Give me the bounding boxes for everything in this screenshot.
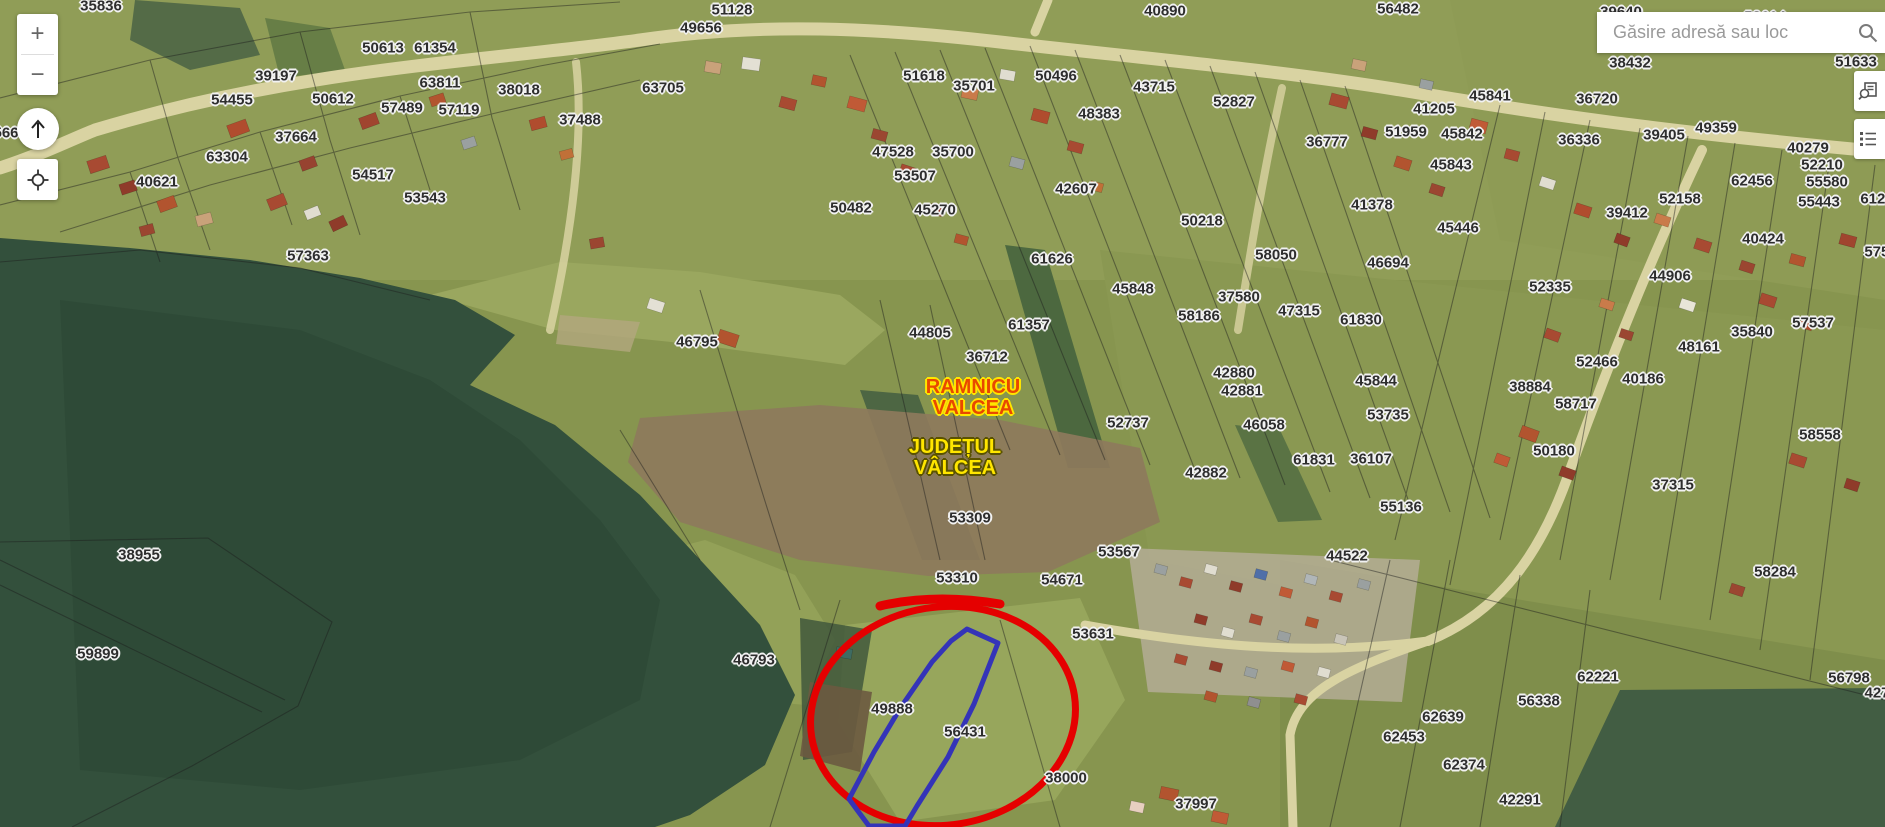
parcel-label: 50612 [312, 91, 354, 108]
parcel-label: 45844 [1355, 373, 1397, 390]
search-bar [1597, 12, 1885, 53]
parcel-label: 58284 [1754, 564, 1796, 581]
parcel-label: 45842 [1441, 126, 1483, 143]
parcel-label: 52737 [1107, 415, 1149, 432]
parcel-label: 49359 [1695, 120, 1737, 137]
parcel-label: 61830 [1340, 312, 1382, 329]
parcel-label: 63811 [420, 75, 461, 92]
parcel-label: 57363 [287, 248, 329, 265]
locate-button[interactable] [17, 159, 58, 200]
parcel-label: 54671 [1041, 572, 1083, 589]
parcel-label: 52210 [1801, 157, 1843, 174]
parcel-label: 49888 [871, 701, 913, 718]
parcel-label: 38884 [1509, 379, 1551, 396]
north-arrow-button[interactable] [17, 108, 59, 150]
parcel-label: 427 [1864, 685, 1885, 702]
parcel-label: 61357 [1008, 317, 1050, 334]
parcel-label: 6120 [1860, 191, 1885, 208]
parcel-label: 57537 [1792, 315, 1834, 332]
parcel-label: 51959 [1385, 124, 1427, 141]
parcel-label: 41205 [1413, 101, 1455, 118]
parcel-label: 42880 [1213, 365, 1255, 382]
parcel-label: 44522 [1326, 548, 1368, 565]
parcel-label: 45843 [1430, 157, 1472, 174]
parcel-label: 46793 [733, 652, 775, 669]
parcel-label: 54455 [211, 92, 253, 109]
parcel-label: 38000 [1045, 770, 1087, 787]
parcel-label: 45848 [1112, 281, 1154, 298]
parcel-label: 36712 [966, 349, 1008, 366]
parcel-label: 53309 [949, 510, 991, 527]
parcel-label: 38432 [1609, 55, 1651, 72]
parcel-label: 49656 [680, 20, 722, 37]
parcel-label: 37997 [1175, 796, 1217, 813]
county-label-judetul-valcea: JUDEȚUL VÂLCEA [909, 437, 1001, 479]
parcel-label: 50482 [830, 200, 872, 217]
parcel-label: 56338 [1518, 693, 1560, 710]
parcel-label: 45446 [1437, 220, 1479, 237]
parcel-label: 43715 [1133, 79, 1175, 96]
parcel-label: 48383 [1078, 106, 1120, 123]
parcel-label: 566 [0, 125, 19, 142]
map-viewport[interactable]: 3583651128496564089056482396405861450613… [0, 0, 1885, 827]
parcel-label: 62456 [1731, 173, 1773, 190]
parcel-label: 44805 [909, 325, 951, 342]
parcel-label: 39405 [1643, 127, 1685, 144]
parcel-label: 37315 [1652, 477, 1694, 494]
parcel-label: 40424 [1742, 231, 1784, 248]
parcel-label: 45270 [914, 202, 956, 219]
parcel-label: 46058 [1243, 417, 1285, 434]
parcel-label: 35836 [80, 0, 122, 15]
parcel-label: 40621 [136, 174, 178, 191]
parcel-label: 35840 [1731, 324, 1773, 341]
parcel-label: 36336 [1558, 132, 1600, 149]
parcel-label: 50180 [1533, 443, 1575, 460]
parcel-label: 37580 [1218, 289, 1260, 306]
parcel-label: 40279 [1787, 140, 1829, 157]
parcel-label: 50496 [1035, 68, 1077, 85]
list-icon [1858, 129, 1878, 149]
parcel-label: 52827 [1213, 94, 1255, 111]
parcel-label: 35700 [932, 144, 974, 161]
parcel-label: 55580 [1806, 174, 1848, 191]
parcel-label: 37488 [559, 112, 601, 129]
parcel-label: 47528 [872, 144, 914, 161]
parcel-label: 58186 [1178, 308, 1220, 325]
parcel-label: 52466 [1576, 354, 1618, 371]
parcel-label: 42882 [1185, 465, 1227, 482]
parcel-label: 58717 [1555, 396, 1597, 413]
parcel-label: 57489 [381, 100, 423, 117]
parcel-label: 50218 [1181, 213, 1223, 230]
parcel-label: 61354 [414, 40, 456, 57]
parcel-label: 45841 [1469, 88, 1511, 105]
parcel-label: 53567 [1098, 544, 1140, 561]
search-input[interactable] [1597, 22, 1851, 43]
parcel-label: 38955 [118, 547, 160, 564]
parcel-label: 42607 [1055, 181, 1097, 198]
parcel-label: 39197 [255, 68, 297, 85]
parcel-label: 42881 [1221, 383, 1263, 400]
parcel-label: 36777 [1306, 134, 1348, 151]
parcel-label: 37664 [275, 129, 317, 146]
zoom-control: + − [17, 14, 58, 95]
parcel-label: 53507 [894, 168, 936, 185]
parcel-label: 53631 [1072, 626, 1114, 643]
parcel-label: 51633 [1835, 54, 1877, 71]
parcel-label: 35701 [953, 78, 995, 95]
parcel-label: 62221 [1577, 669, 1619, 686]
parcel-label: 36107 [1350, 451, 1392, 468]
parcel-label: 5753 [1864, 244, 1885, 261]
zoom-in-button[interactable]: + [17, 14, 58, 54]
parcel-label: 53543 [404, 190, 446, 207]
parcel-label: 52335 [1529, 279, 1571, 296]
parcel-label: 48161 [1678, 339, 1720, 356]
parcel-label: 46795 [676, 334, 718, 351]
parcel-label: 61626 [1031, 251, 1073, 268]
parcel-label: 42291 [1499, 792, 1541, 809]
parcel-label: 38018 [498, 82, 540, 99]
parcel-label: 53310 [936, 570, 978, 587]
parcel-label: 52158 [1659, 191, 1701, 208]
parcel-label: 36720 [1576, 91, 1618, 108]
parcel-label: 44906 [1649, 268, 1691, 285]
parcel-label: 62374 [1443, 757, 1485, 774]
parcel-label: 63304 [206, 149, 248, 166]
parcel-label: 40890 [1144, 3, 1186, 20]
parcel-label: 40186 [1622, 371, 1664, 388]
parcel-label: 41378 [1351, 197, 1393, 214]
parcel-search-button[interactable] [1854, 71, 1885, 111]
parcel-label: 58558 [1799, 427, 1841, 444]
parcel-label: 47315 [1278, 303, 1320, 320]
city-label-ramnicu-valcea: RAMNICU VALCEA [926, 377, 1020, 419]
parcel-label: 51128 [712, 2, 753, 19]
parcel-label: 50613 [362, 40, 404, 57]
parcel-label: 39412 [1606, 205, 1648, 222]
parcel-label: 55136 [1380, 499, 1422, 516]
parcel-label: 62639 [1422, 709, 1464, 726]
north-arrow-icon [27, 118, 49, 140]
parcel-label: 56482 [1377, 1, 1419, 18]
parcel-label: 63705 [642, 80, 684, 97]
layer-list-button[interactable] [1854, 119, 1885, 159]
search-button[interactable] [1851, 12, 1885, 53]
parcel-label: 55443 [1798, 194, 1840, 211]
parcel-label: 58050 [1255, 247, 1297, 264]
parcel-label: 57119 [439, 102, 480, 119]
parcel-label: 46694 [1367, 255, 1409, 272]
document-search-icon [1858, 81, 1878, 101]
parcel-label: 56431 [944, 724, 986, 741]
parcel-label: 62453 [1383, 729, 1425, 746]
parcel-label: 51618 [903, 68, 945, 85]
search-icon [1857, 22, 1879, 44]
parcel-label: 54517 [352, 167, 394, 184]
parcel-label: 61831 [1293, 452, 1335, 469]
parcel-label: 59899 [77, 646, 119, 663]
crosshair-icon [26, 168, 50, 192]
zoom-out-button[interactable]: − [17, 55, 58, 95]
parcel-label: 53735 [1367, 407, 1409, 424]
